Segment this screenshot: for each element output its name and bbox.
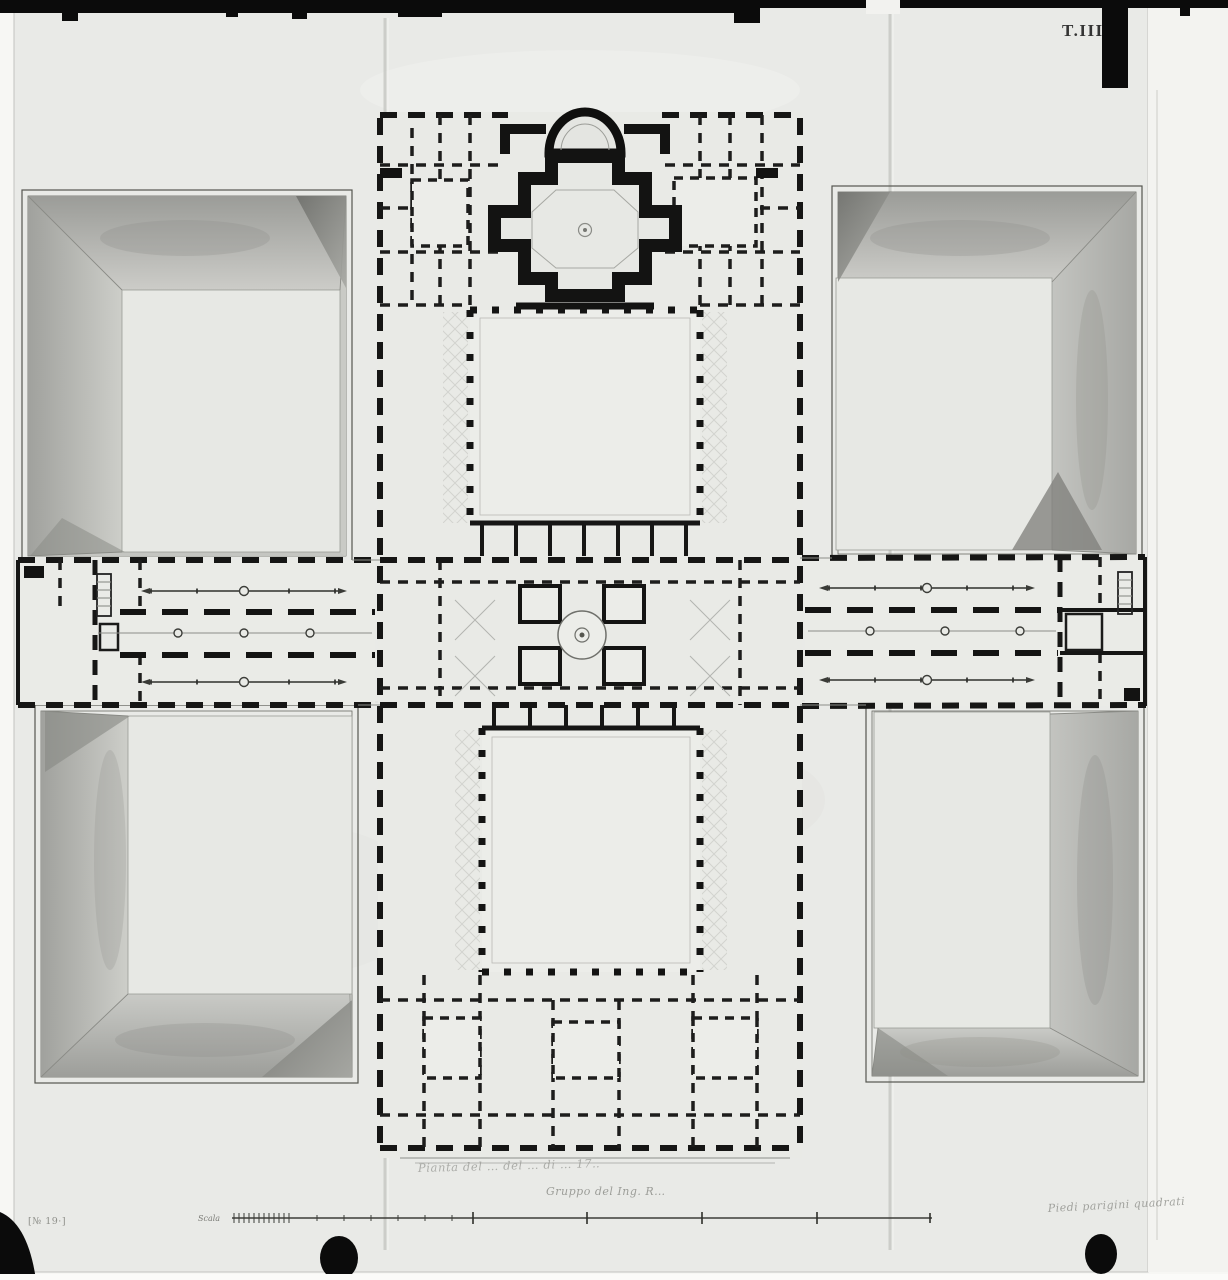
left-wing — [18, 560, 375, 705]
central-rotunda — [558, 611, 606, 659]
small-court-lower-left — [424, 1018, 480, 1078]
archive-number-mark: [№ 19·] — [28, 1216, 66, 1227]
small-court-upper-right — [674, 178, 756, 246]
small-court-lower-right — [693, 1018, 757, 1078]
central-block — [378, 112, 802, 1163]
courtyard-bottom-left — [35, 705, 358, 1083]
handwritten-signature-note: Gruppo del Ing. R… — [546, 1185, 666, 1198]
scale-bar-label: Scala — [198, 1214, 220, 1223]
courtyard-bottom-right — [866, 705, 1144, 1082]
right-wing — [802, 557, 1146, 706]
archival-photo-of-floor-plan: Scala T.III. Pianta del … del … di … 17‥… — [0, 0, 1228, 1280]
small-court-upper-left — [412, 180, 468, 246]
upper-cloister-court — [443, 310, 727, 556]
small-court-lower-center — [553, 1022, 619, 1078]
courtyard-top-left — [22, 190, 352, 562]
lower-cloister-court — [455, 705, 727, 972]
floor-plan-svg: Scala T.III. Pianta del … del … di … 17‥… — [0, 0, 1228, 1280]
courtyard-top-right — [832, 186, 1142, 560]
